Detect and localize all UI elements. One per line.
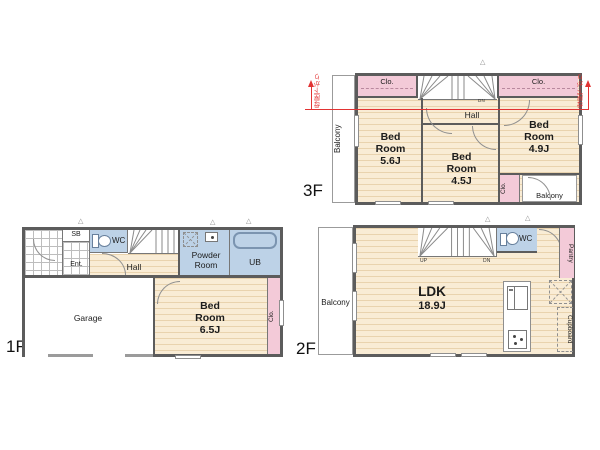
stairs-3f-dn-label: DN bbox=[478, 98, 485, 103]
staircase-1f bbox=[128, 230, 178, 254]
entrance-1f bbox=[63, 242, 90, 275]
garage-label: Garage bbox=[58, 313, 118, 323]
refrigerator-space-icon bbox=[549, 280, 572, 304]
balcony-2f-label: Balcony bbox=[319, 298, 352, 307]
window-marker bbox=[430, 353, 456, 357]
window-marker bbox=[375, 201, 401, 205]
pantry-2f: Pantry bbox=[559, 228, 574, 278]
bedroom-1f-6-5-label: Bed Room 6.5J bbox=[153, 301, 267, 336]
vent-triangle-icon: △ bbox=[78, 218, 83, 225]
entrance-label: Ent. bbox=[63, 261, 90, 268]
bedroom-3f-4-9-label: Bed Room 4.9J bbox=[498, 120, 580, 155]
closet-3f-right: Clo. bbox=[497, 76, 578, 98]
sink-divider bbox=[514, 287, 515, 309]
window-marker bbox=[461, 353, 487, 357]
drain-dot bbox=[211, 236, 214, 239]
burner-dot bbox=[520, 338, 523, 341]
closet-3f-left: Clo. bbox=[358, 76, 418, 98]
toilet-icon bbox=[506, 232, 519, 245]
vent-triangle-icon: △ bbox=[210, 219, 215, 226]
sloped-ceiling-arrow-left bbox=[311, 86, 312, 110]
staircase-2f bbox=[418, 228, 497, 257]
room-name-line: Room bbox=[180, 261, 232, 271]
stove-icon bbox=[508, 330, 527, 349]
window-marker bbox=[428, 201, 454, 205]
vent-triangle-icon: △ bbox=[525, 215, 530, 222]
powder-room-label: Powder Room bbox=[180, 251, 232, 271]
closet-3f-small: Clo. bbox=[500, 175, 520, 202]
sloped-ceiling-note-left: 母屋下がり bbox=[314, 62, 324, 108]
closet-3f-small-label: Clo. bbox=[500, 175, 519, 202]
floorplan-canvas: 3F △ Balcony Clo. DN Clo. Hall Bed R bbox=[0, 0, 600, 450]
shoebox-label: SB bbox=[63, 230, 89, 238]
room-name-line: Room bbox=[423, 164, 500, 176]
shoebox-1f: SB bbox=[63, 230, 90, 242]
wc-2f: WC bbox=[497, 228, 537, 253]
window-marker bbox=[279, 300, 284, 326]
hall-3f-label: Hall bbox=[450, 110, 494, 120]
floor-2f-plan: 2F △ △ Balcony UP DN WC Pantry bbox=[290, 215, 590, 370]
wc-2f-label: WC bbox=[519, 234, 532, 243]
floor-1f-plan: 1F △ △ △ SB Ent. WC UP Hall bbox=[0, 215, 300, 370]
faucet-icon bbox=[509, 289, 513, 291]
wc-1f: WC bbox=[90, 230, 128, 253]
room-size: 4.9J bbox=[498, 144, 580, 156]
garage-door-line bbox=[48, 354, 93, 357]
closet-3f-right-label: Clo. bbox=[499, 76, 578, 86]
room-name-line: Bed bbox=[423, 152, 500, 164]
cupboard-2f: Cupboard bbox=[557, 307, 573, 352]
closet-dash-line bbox=[502, 88, 575, 89]
balcony-3f-left-label: Balcony bbox=[333, 76, 354, 202]
sink-icon bbox=[205, 232, 218, 242]
vent-triangle-icon: △ bbox=[480, 59, 485, 66]
pantry-label: Pantry bbox=[560, 228, 574, 278]
wall-segment bbox=[267, 354, 283, 357]
wc-1f-label: WC bbox=[112, 236, 125, 245]
bedroom-3f-4-5-label: Bed Room 4.5J bbox=[423, 152, 500, 187]
unit-bath-1f: UB bbox=[230, 230, 280, 275]
room-name-line: Room bbox=[153, 313, 267, 325]
room-size: 5.6J bbox=[358, 156, 423, 168]
ub-label: UB bbox=[230, 257, 280, 267]
window-marker bbox=[354, 115, 359, 147]
room-size: 4.5J bbox=[423, 176, 500, 188]
room-name-line: Room bbox=[498, 132, 580, 144]
vent-triangle-icon: △ bbox=[485, 216, 490, 223]
closet-3f-left-label: Clo. bbox=[358, 76, 416, 86]
sloped-ceiling-note-right: 母屋下がり bbox=[577, 62, 587, 108]
staircase-3f bbox=[418, 76, 497, 100]
burner-dot bbox=[514, 342, 517, 345]
room-name-line: LDK bbox=[388, 285, 476, 300]
floor-3f-plan: 3F △ Balcony Clo. DN Clo. Hall Bed R bbox=[300, 60, 590, 210]
stairs-2f-dn-label: DN bbox=[483, 258, 491, 264]
toilet-icon bbox=[98, 235, 111, 247]
sloped-ceiling-line bbox=[305, 109, 588, 110]
garage-door-line bbox=[125, 354, 153, 357]
stairs-2f-up-label: UP bbox=[420, 258, 427, 264]
cupboard-label: Cupboard bbox=[558, 308, 573, 351]
bedroom-3f-5-6-label: Bed Room 5.6J bbox=[358, 132, 423, 167]
closet-dash-line bbox=[361, 88, 413, 89]
balcony-2f: Balcony bbox=[318, 227, 353, 355]
window-marker bbox=[352, 291, 357, 321]
room-size: 18.9J bbox=[388, 300, 476, 313]
room-name-line: Bed bbox=[358, 132, 423, 144]
powder-room-1f: Powder Room bbox=[178, 230, 230, 275]
room-name-line: Room bbox=[358, 144, 423, 156]
sink-icon bbox=[507, 286, 528, 310]
balcony-3f-left: Balcony bbox=[332, 75, 355, 203]
burner-dot bbox=[513, 335, 516, 338]
vent-triangle-icon: △ bbox=[246, 218, 251, 225]
window-marker bbox=[578, 115, 583, 145]
room-size: 6.5J bbox=[153, 325, 267, 337]
bathtub-icon bbox=[233, 232, 277, 249]
ldk-label: LDK 18.9J bbox=[388, 285, 476, 313]
sloped-ceiling-arrow-right bbox=[588, 86, 589, 110]
window-marker bbox=[175, 355, 201, 359]
window-marker bbox=[352, 243, 357, 273]
floor-label-3f: 3F bbox=[303, 181, 323, 201]
kitchen-counter-2f bbox=[503, 281, 531, 352]
washer-space-icon bbox=[183, 232, 198, 247]
